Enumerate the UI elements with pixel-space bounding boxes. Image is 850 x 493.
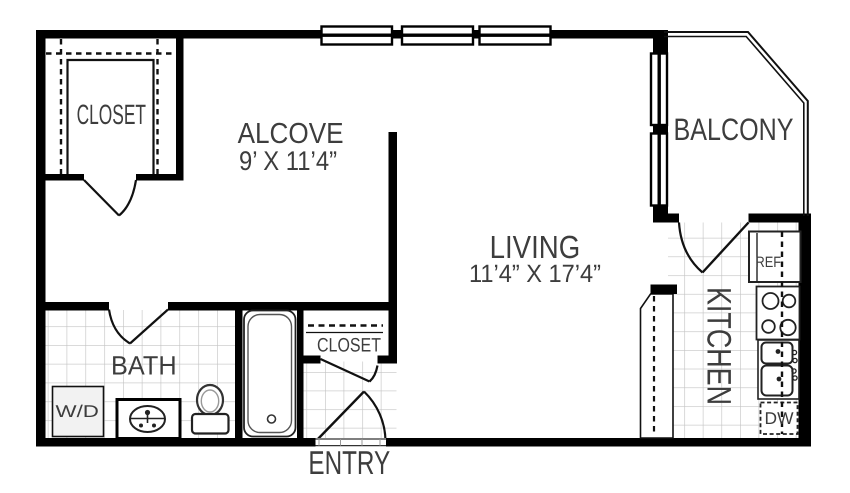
svg-text:ENTRY: ENTRY (308, 444, 390, 481)
svg-text:BALCONY: BALCONY (674, 112, 794, 147)
svg-text:KITCHEN: KITCHEN (700, 287, 738, 405)
svg-text:CLOSET: CLOSET (317, 335, 381, 357)
svg-text:11’4” X 17’4”: 11’4” X 17’4” (469, 260, 601, 288)
svg-text:REF: REF (756, 254, 782, 271)
svg-text:BATH: BATH (111, 351, 177, 381)
svg-text:CLOSET: CLOSET (77, 99, 146, 130)
svg-text:DW: DW (765, 409, 794, 428)
svg-text:9’ X 11’4”: 9’ X 11’4” (239, 146, 337, 176)
svg-text:W/D: W/D (56, 402, 99, 421)
